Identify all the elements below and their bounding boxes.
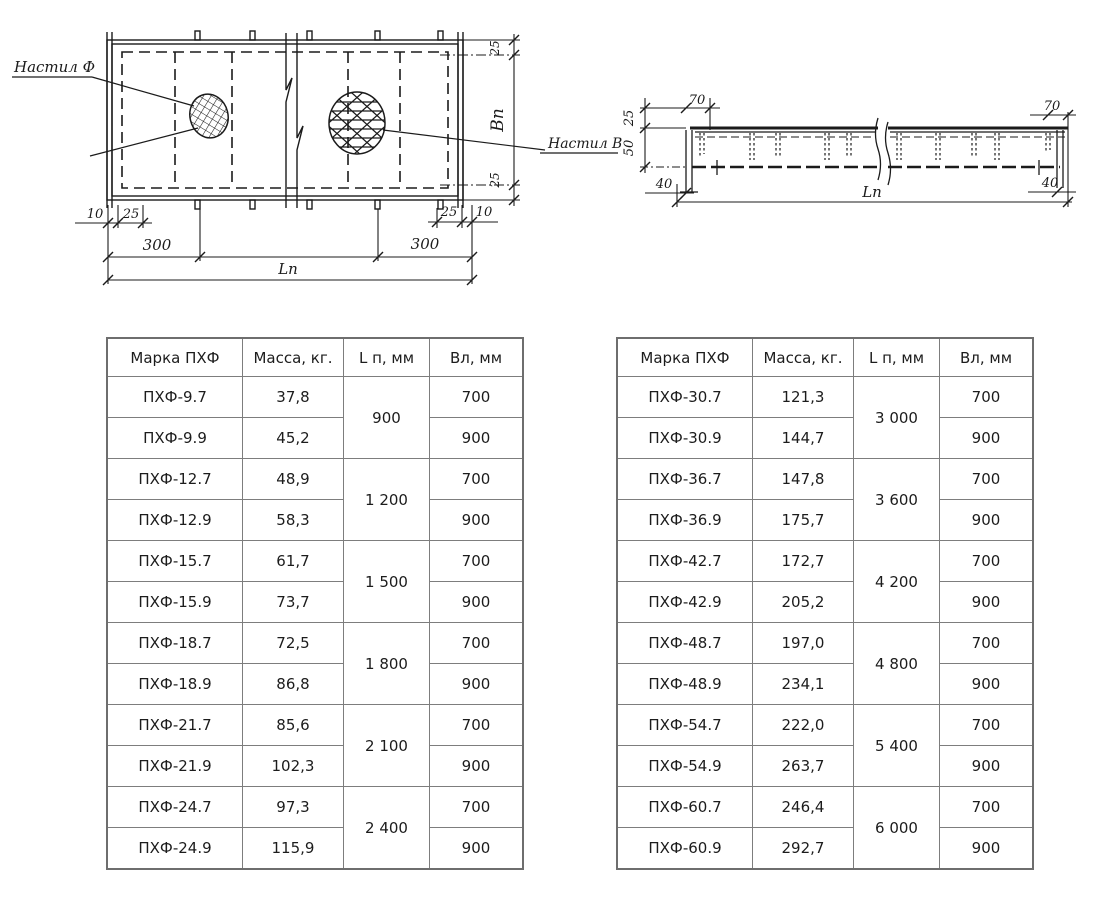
mass-cell: 234,1 <box>753 664 854 705</box>
table-row: ПХФ-9.945,2900 <box>107 418 523 459</box>
width-cell: 700 <box>940 377 1034 418</box>
width-cell: 700 <box>940 541 1034 582</box>
table-row: ПХФ-15.761,71 500700 <box>107 541 523 582</box>
table-row: ПХФ-24.797,32 400700 <box>107 787 523 828</box>
width-cell: 900 <box>430 828 524 870</box>
mass-cell: 86,8 <box>243 664 344 705</box>
width-cell: 700 <box>430 377 524 418</box>
mark-cell: ПХФ-42.7 <box>617 541 753 582</box>
spec-table-right: Марка ПХФМасса, кг.L п, ммВл, ммПХФ-30.7… <box>616 337 1034 870</box>
mass-cell: 72,5 <box>243 623 344 664</box>
length-cell: 2 400 <box>344 787 430 870</box>
mass-cell: 121,3 <box>753 377 854 418</box>
section-dimensions <box>640 98 1076 207</box>
table-row: ПХФ-36.7147,83 600700 <box>617 459 1033 500</box>
table-row: ПХФ-60.9292,7900 <box>617 828 1033 870</box>
break-line <box>286 33 292 208</box>
mark-cell: ПХФ-24.9 <box>107 828 243 870</box>
deck-v-mesh <box>329 92 385 154</box>
deck-f-hatch <box>185 90 233 142</box>
mass-cell: 102,3 <box>243 746 344 787</box>
mark-cell: ПХФ-9.9 <box>107 418 243 459</box>
catalog-page: Настил Ф Настил В 10 25 25 10 300 300 Lп… <box>0 0 1101 899</box>
mark-cell: ПХФ-30.7 <box>617 377 753 418</box>
table-row: ПХФ-30.7121,33 000700 <box>617 377 1033 418</box>
mass-cell: 97,3 <box>243 787 344 828</box>
width-cell: 700 <box>940 459 1034 500</box>
length-cell: 1 500 <box>344 541 430 623</box>
mass-cell: 48,9 <box>243 459 344 500</box>
width-cell: 900 <box>940 582 1034 623</box>
length-cell: 1 800 <box>344 623 430 705</box>
col-header-1: Масса, кг. <box>753 338 854 377</box>
dim-width-bp: Вп <box>488 108 508 132</box>
mass-cell: 292,7 <box>753 828 854 870</box>
table-row: ПХФ-48.9234,1900 <box>617 664 1033 705</box>
width-dimension <box>440 34 520 206</box>
mass-cell: 61,7 <box>243 541 344 582</box>
dim-25: 25 <box>622 110 637 128</box>
table-row: ПХФ-15.973,7900 <box>107 582 523 623</box>
dim-70-right: 70 <box>1044 99 1061 114</box>
table-row: ПХФ-12.958,3900 <box>107 500 523 541</box>
width-cell: 900 <box>940 828 1034 870</box>
spec-table-left: Марка ПХФМасса, кг.L п, ммВл, ммПХФ-9.73… <box>106 337 524 870</box>
width-cell: 700 <box>430 459 524 500</box>
table-row: ПХФ-9.737,8900700 <box>107 377 523 418</box>
length-cell: 2 100 <box>344 705 430 787</box>
width-cell: 900 <box>940 664 1034 705</box>
width-cell: 700 <box>940 787 1034 828</box>
col-header-1: Масса, кг. <box>243 338 344 377</box>
mass-cell: 45,2 <box>243 418 344 459</box>
width-cell: 700 <box>940 623 1034 664</box>
dim-70-left: 70 <box>689 93 706 108</box>
table-row: ПХФ-18.772,51 800700 <box>107 623 523 664</box>
mark-cell: ПХФ-24.7 <box>107 787 243 828</box>
plan-drawing: Настил Ф Настил В 10 25 25 10 300 300 Lп… <box>0 0 620 300</box>
mass-cell: 246,4 <box>753 787 854 828</box>
mass-cell: 205,2 <box>753 582 854 623</box>
dim-10-left: 10 <box>87 207 104 222</box>
dim-50: 50 <box>622 140 637 157</box>
dim-25-left: 25 <box>122 207 140 222</box>
header-row: Марка ПХФМасса, кг.L п, ммВл, мм <box>617 338 1033 377</box>
width-cell: 700 <box>430 705 524 746</box>
length-cell: 3 000 <box>854 377 940 459</box>
width-cell: 900 <box>940 418 1034 459</box>
width-cell: 700 <box>940 705 1034 746</box>
mark-cell: ПХФ-60.9 <box>617 828 753 870</box>
panel-plan-outline <box>12 31 618 285</box>
col-header-0: Марка ПХФ <box>107 338 243 377</box>
deck-v-label: Настил В <box>547 136 622 152</box>
mark-cell: ПХФ-36.9 <box>617 500 753 541</box>
table-row: ПХФ-42.9205,2900 <box>617 582 1033 623</box>
table-row: ПХФ-60.7246,46 000700 <box>617 787 1033 828</box>
dim-length-section: Lп <box>861 183 882 201</box>
dim-25-top: 25 <box>488 40 502 56</box>
dim-10-right: 10 <box>476 205 493 220</box>
mark-cell: ПХФ-12.9 <box>107 500 243 541</box>
width-cell: 900 <box>940 500 1034 541</box>
mark-cell: ПХФ-21.9 <box>107 746 243 787</box>
mark-cell: ПХФ-18.7 <box>107 623 243 664</box>
width-cell: 900 <box>430 746 524 787</box>
mass-cell: 263,7 <box>753 746 854 787</box>
dim-length-plan: Lп <box>277 260 298 278</box>
mark-cell: ПХФ-30.9 <box>617 418 753 459</box>
mark-cell: ПХФ-54.7 <box>617 705 753 746</box>
table-row: ПХФ-48.7197,04 800700 <box>617 623 1033 664</box>
mark-cell: ПХФ-48.9 <box>617 664 753 705</box>
width-cell: 700 <box>430 541 524 582</box>
leader-lines <box>12 77 618 156</box>
mass-cell: 73,7 <box>243 582 344 623</box>
table-row: ПХФ-42.7172,74 200700 <box>617 541 1033 582</box>
mark-cell: ПХФ-18.9 <box>107 664 243 705</box>
length-cell: 3 600 <box>854 459 940 541</box>
section-drawing: 25 50 70 70 40 40 Lп <box>620 80 1101 230</box>
mark-cell: ПХФ-42.9 <box>617 582 753 623</box>
mark-cell: ПХФ-21.7 <box>107 705 243 746</box>
break-line <box>886 122 891 185</box>
table-row: ПХФ-30.9144,7900 <box>617 418 1033 459</box>
dim-25-right: 25 <box>440 205 458 220</box>
mark-cell: ПХФ-15.9 <box>107 582 243 623</box>
mass-cell: 197,0 <box>753 623 854 664</box>
col-header-2: L п, мм <box>344 338 430 377</box>
panel-section-outline <box>640 98 1076 207</box>
mass-cell: 172,7 <box>753 541 854 582</box>
mark-cell: ПХФ-9.7 <box>107 377 243 418</box>
mass-cell: 222,0 <box>753 705 854 746</box>
table-row: ПХФ-24.9115,9900 <box>107 828 523 870</box>
width-cell: 900 <box>430 664 524 705</box>
mark-cell: ПХФ-12.7 <box>107 459 243 500</box>
width-cell: 900 <box>430 500 524 541</box>
col-header-3: Вл, мм <box>940 338 1034 377</box>
table-row: ПХФ-12.748,91 200700 <box>107 459 523 500</box>
mass-cell: 115,9 <box>243 828 344 870</box>
break-line <box>297 33 303 208</box>
mark-cell: ПХФ-15.7 <box>107 541 243 582</box>
dim-300-right: 300 <box>411 235 440 253</box>
table-row: ПХФ-36.9175,7900 <box>617 500 1033 541</box>
table-row: ПХФ-18.986,8900 <box>107 664 523 705</box>
table-row: ПХФ-54.9263,7900 <box>617 746 1033 787</box>
col-header-2: L п, мм <box>854 338 940 377</box>
dim-40-right: 40 <box>1041 176 1059 191</box>
mark-cell: ПХФ-60.7 <box>617 787 753 828</box>
header-row: Марка ПХФМасса, кг.L п, ммВл, мм <box>107 338 523 377</box>
table-row: ПХФ-21.785,62 100700 <box>107 705 523 746</box>
table-row: ПХФ-54.7222,05 400700 <box>617 705 1033 746</box>
mark-cell: ПХФ-54.9 <box>617 746 753 787</box>
mass-cell: 144,7 <box>753 418 854 459</box>
length-cell: 1 200 <box>344 459 430 541</box>
width-cell: 900 <box>940 746 1034 787</box>
deck-f-label: Настил Ф <box>13 58 95 76</box>
col-header-3: Вл, мм <box>430 338 524 377</box>
table-row: ПХФ-21.9102,3900 <box>107 746 523 787</box>
width-cell: 900 <box>430 418 524 459</box>
length-cell: 6 000 <box>854 787 940 870</box>
length-cell: 4 200 <box>854 541 940 623</box>
mass-cell: 147,8 <box>753 459 854 500</box>
width-cell: 700 <box>430 787 524 828</box>
mass-cell: 85,6 <box>243 705 344 746</box>
length-cell: 5 400 <box>854 705 940 787</box>
length-cell: 4 800 <box>854 623 940 705</box>
col-header-0: Марка ПХФ <box>617 338 753 377</box>
mark-cell: ПХФ-48.7 <box>617 623 753 664</box>
length-cell: 900 <box>344 377 430 459</box>
mass-cell: 175,7 <box>753 500 854 541</box>
dim-25-bottom: 25 <box>488 172 502 188</box>
width-cell: 900 <box>430 582 524 623</box>
width-cell: 700 <box>430 623 524 664</box>
dim-40-left: 40 <box>655 177 673 192</box>
mark-cell: ПХФ-36.7 <box>617 459 753 500</box>
mass-cell: 58,3 <box>243 500 344 541</box>
mass-cell: 37,8 <box>243 377 344 418</box>
dim-300-left: 300 <box>143 236 172 254</box>
